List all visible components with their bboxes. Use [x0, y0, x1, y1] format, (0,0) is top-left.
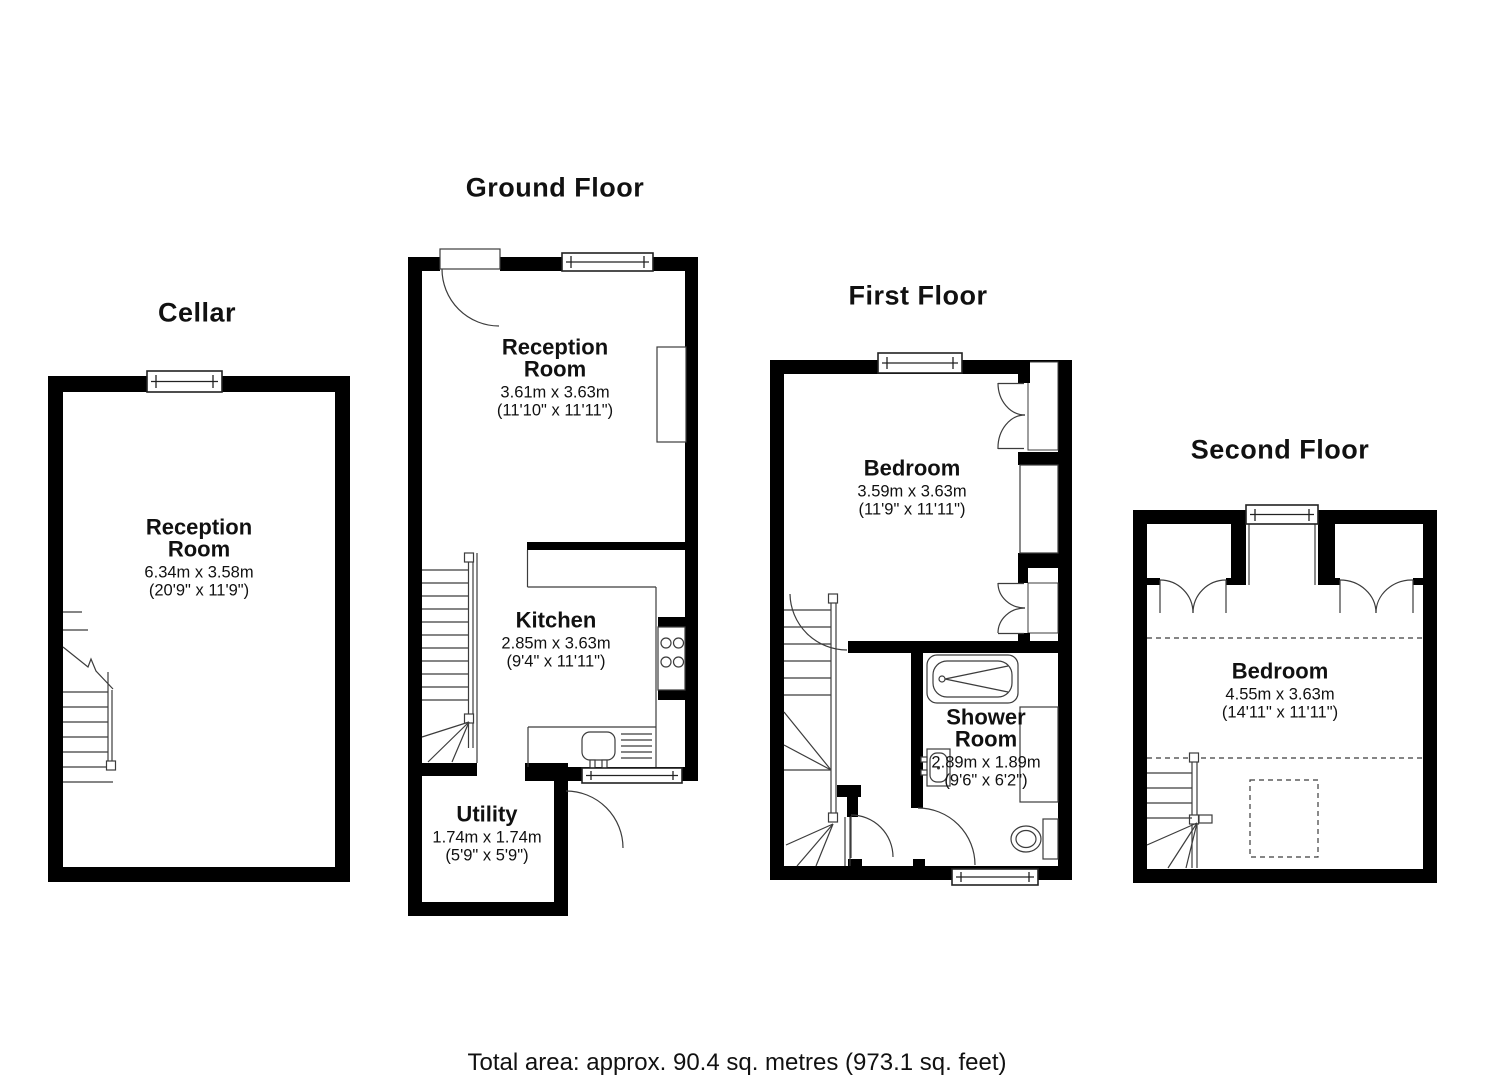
room-name: Utility	[432, 804, 541, 826]
floor-title-first: First Floor	[849, 281, 988, 312]
window-icon	[562, 253, 653, 271]
room-label-second-bedroom: Bedroom 4.55m x 3.63m (14'11" x 11'11")	[1222, 661, 1338, 722]
room-label-shower-room: Shower Room 2.89m x 1.89m (9'6" x 6'2")	[931, 707, 1040, 790]
room-name: Bedroom	[1222, 661, 1338, 683]
cellar-window-icon	[147, 371, 222, 392]
cellar-plan	[48, 371, 350, 882]
chimney-breast-icon	[657, 347, 686, 442]
cellar-stairs-icon	[63, 612, 116, 782]
hob-icon	[658, 627, 685, 690]
room-label-kitchen: Kitchen 2.85m x 3.63m (9'4" x 11'11")	[501, 610, 610, 671]
room-label-utility: Utility 1.74m x 1.74m (5'9" x 5'9")	[432, 804, 541, 865]
utility-door-arc-icon	[566, 791, 623, 848]
room-name: Room	[497, 359, 613, 381]
room-dims-imperial: (20'9" x 11'9")	[144, 582, 253, 600]
room-dims-imperial: (11'9" x 11'11")	[857, 501, 966, 519]
room-label-cellar-reception: Reception Room 6.34m x 3.58m (20'9" x 11…	[144, 517, 253, 600]
total-area-text: Total area: approx. 90.4 sq. metres (973…	[468, 1049, 1007, 1077]
room-name: Room	[931, 729, 1040, 751]
room-label-ground-reception: Reception Room 3.61m x 3.63m (11'10" x 1…	[497, 337, 613, 420]
window-icon	[582, 768, 682, 783]
floor-title-second: Second Floor	[1191, 435, 1370, 466]
second-floor-windows	[1246, 505, 1318, 524]
room-dims-imperial: (11'10" x 11'11")	[497, 402, 613, 420]
window-icon	[1246, 505, 1318, 524]
room-dims-metric: 3.59m x 3.63m	[857, 483, 966, 501]
floorplan-page: Cellar Ground Floor First Floor Second F…	[0, 0, 1485, 1080]
first-floor-plan	[770, 353, 1072, 885]
room-dims-metric: 4.55m x 3.63m	[1222, 686, 1338, 704]
floor-title-cellar: Cellar	[158, 298, 236, 329]
room-dims-metric: 6.34m x 3.58m	[144, 564, 253, 582]
room-dims-imperial: (14'11" x 11'11")	[1222, 704, 1338, 722]
window-icon	[878, 353, 962, 373]
room-name: Kitchen	[501, 610, 610, 632]
room-name: Reception	[497, 337, 613, 359]
cellar-walls	[48, 376, 350, 882]
room-name: Bedroom	[857, 458, 966, 480]
room-label-first-bedroom: Bedroom 3.59m x 3.63m (11'9" x 11'11")	[857, 458, 966, 519]
room-dims-imperial: (9'4" x 11'11")	[501, 653, 610, 671]
room-name: Room	[144, 539, 253, 561]
floor-title-ground: Ground Floor	[466, 173, 644, 204]
room-name: Shower	[931, 707, 1040, 729]
room-dims-metric: 2.85m x 3.63m	[501, 635, 610, 653]
room-dims-imperial: (5'9" x 5'9")	[432, 847, 541, 865]
window-icon	[952, 869, 1038, 885]
room-name: Reception	[144, 517, 253, 539]
wardrobe-icon	[1020, 465, 1058, 553]
bathtub-icon	[927, 655, 1018, 703]
room-dims-metric: 3.61m x 3.63m	[497, 384, 613, 402]
room-dims-imperial: (9'6" x 6'2")	[931, 772, 1040, 790]
room-dims-metric: 1.74m x 1.74m	[432, 829, 541, 847]
room-dims-metric: 2.89m x 1.89m	[931, 754, 1040, 772]
